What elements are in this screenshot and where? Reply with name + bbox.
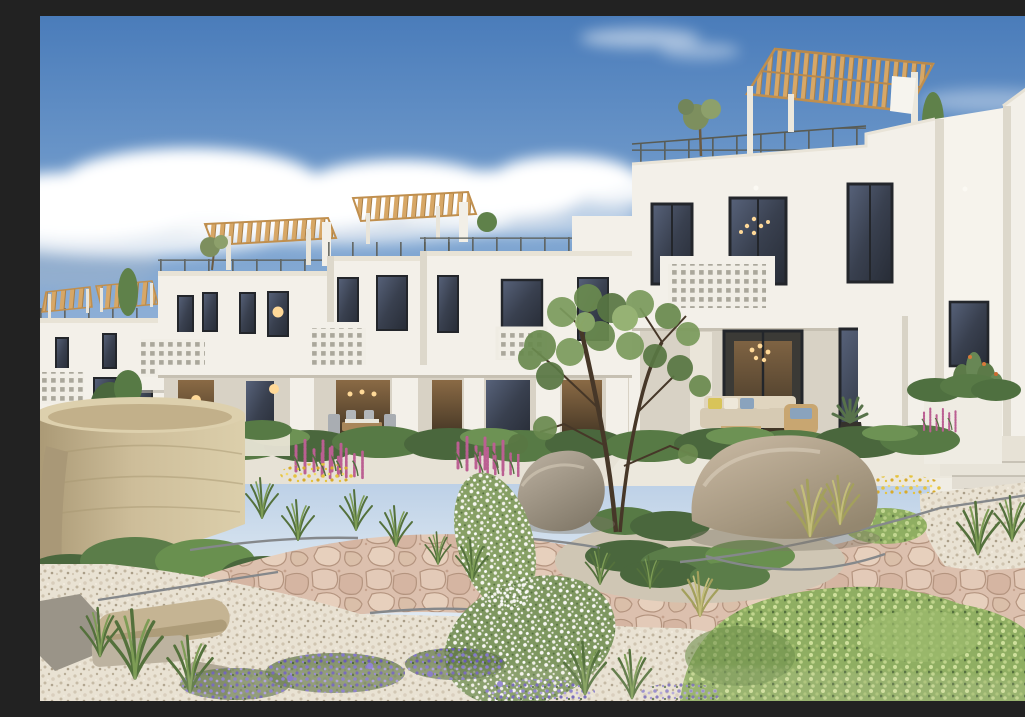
wall-sconce (754, 186, 759, 191)
roof-cypress (118, 268, 138, 316)
roof-shrub (477, 212, 497, 232)
window (338, 278, 358, 328)
globe-lamp (269, 384, 279, 394)
window (203, 293, 217, 331)
window (178, 296, 193, 336)
render-image (40, 16, 1025, 701)
window (240, 293, 255, 333)
window (438, 276, 458, 332)
window (56, 338, 68, 370)
window (103, 334, 116, 368)
rolled-awning (890, 76, 916, 114)
roof-railing (158, 259, 326, 273)
yellow-flowers (280, 463, 356, 485)
globe-lamp (273, 307, 284, 318)
window (377, 276, 407, 330)
wall-sconce (963, 187, 968, 192)
render-canvas (40, 16, 1025, 701)
window-lit (268, 292, 288, 336)
roof-bulkhead (572, 216, 635, 251)
